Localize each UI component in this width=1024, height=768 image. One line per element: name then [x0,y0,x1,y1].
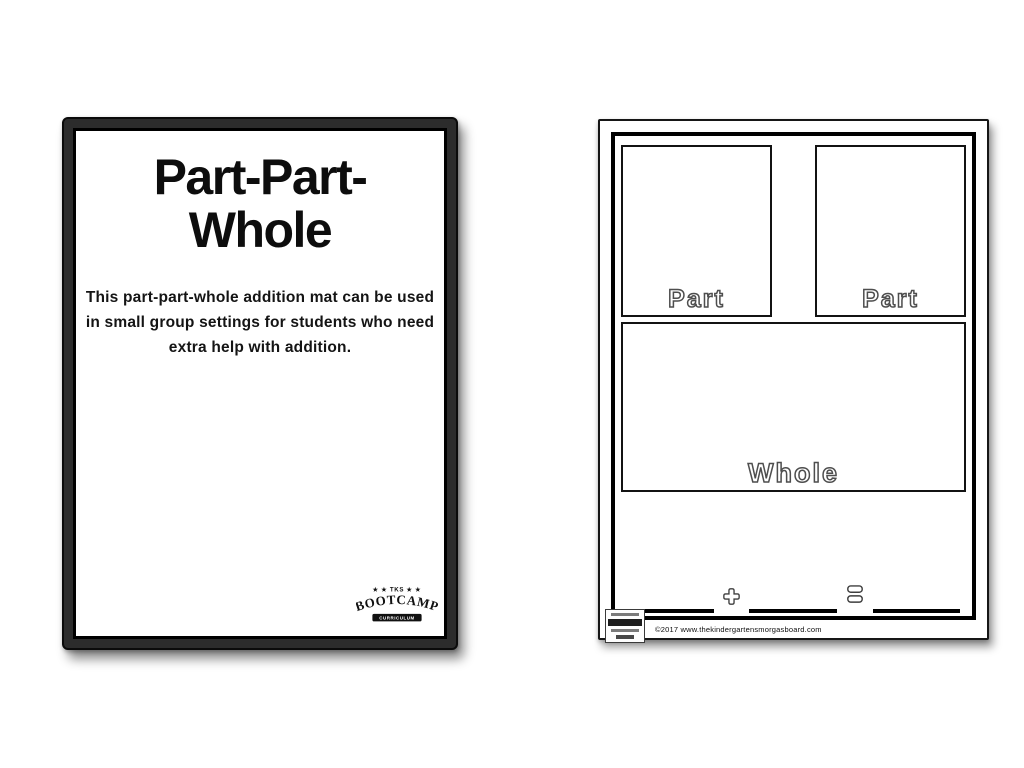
stamp-line [608,619,642,626]
curriculum-text: CURRICULUM [379,615,415,620]
poster-title-line-2: Whole [76,204,444,257]
poster-description: This part-part-whole addition mat can be… [76,285,444,360]
stamp-line [611,629,638,632]
tks-stars-text: ★ ★ TKS ★ ★ [372,586,422,593]
part-box-1: Part [621,145,772,317]
worksheet-frame: Part Part Whole [611,132,976,620]
part-label-1: Part [623,285,770,314]
description-line-1: This part-part-whole addition mat can be… [76,285,444,310]
worksheet-page: Part Part Whole [598,119,989,640]
plus-icon [723,588,740,605]
part-label-2: Part [817,285,964,314]
tks-bootcamp-logo: ★ ★ TKS ★ ★ BOOTCAMP CURRICULUM [356,582,438,628]
part-box-2: Part [815,145,966,317]
poster-page: Part-Part- Whole This part-part-whole ad… [62,117,458,650]
stamp-line [616,635,635,639]
poster-inner-frame: Part-Part- Whole This part-part-whole ad… [73,128,447,639]
whole-label: Whole [623,458,964,489]
blank-line-3 [873,609,960,613]
description-line-3: extra help with addition. [76,335,444,360]
preview-canvas: Part-Part- Whole This part-part-whole ad… [0,0,1024,768]
poster-title-line-1: Part-Part- [76,151,444,204]
bootcamp-wordmark: BOOTCAMP [356,592,438,614]
copyright-text: ©2017 www.thekindergartensmorgasboard.co… [655,625,822,634]
stamp-line [611,613,638,616]
publisher-stamp [605,609,645,643]
blank-line-2 [749,609,836,613]
equation-row [627,584,960,613]
poster-title: Part-Part- Whole [76,151,444,257]
whole-box: Whole [621,322,966,492]
equals-icon [846,584,864,605]
description-line-2: in small group settings for students who… [76,310,444,335]
parts-row: Part Part [615,136,972,317]
